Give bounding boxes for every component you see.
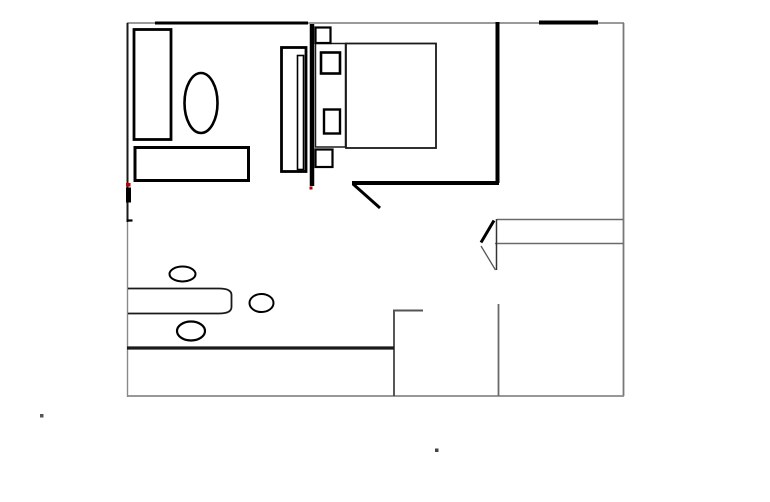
door-swing-diagonal [353, 184, 380, 208]
paint-canvas [0, 0, 770, 502]
arrow-upper-diagonal-thick [481, 221, 494, 243]
stray-dot-left [40, 414, 44, 418]
arrow-lower-diagonal-thin [481, 246, 496, 270]
stool-oval-1 [170, 267, 196, 282]
marks [40, 183, 439, 452]
pillow-bottom [324, 110, 340, 134]
bedpost-bottom-square [316, 150, 333, 168]
interior-walls [127, 22, 624, 396]
door-arrow [481, 219, 497, 270]
oval-chair [185, 73, 218, 133]
bed-mattress [346, 44, 436, 149]
red-dot-door [310, 187, 313, 190]
stool-oval-2 [250, 294, 274, 312]
dresser [135, 148, 249, 181]
stool-oval-3 [177, 322, 205, 341]
red-mark-left-wall [126, 183, 131, 187]
pillow-top [321, 53, 340, 74]
hinge-blob-left-wall [126, 188, 131, 203]
floorplan-drawing [0, 0, 770, 502]
bench-rounded [128, 289, 232, 314]
outer-walls [127, 23, 624, 398]
stray-dot-bottom [435, 449, 439, 453]
bed-headboard [282, 48, 307, 172]
headboard-slat [298, 56, 304, 170]
wardrobe [134, 30, 171, 140]
bedpost-top-square [316, 28, 331, 44]
